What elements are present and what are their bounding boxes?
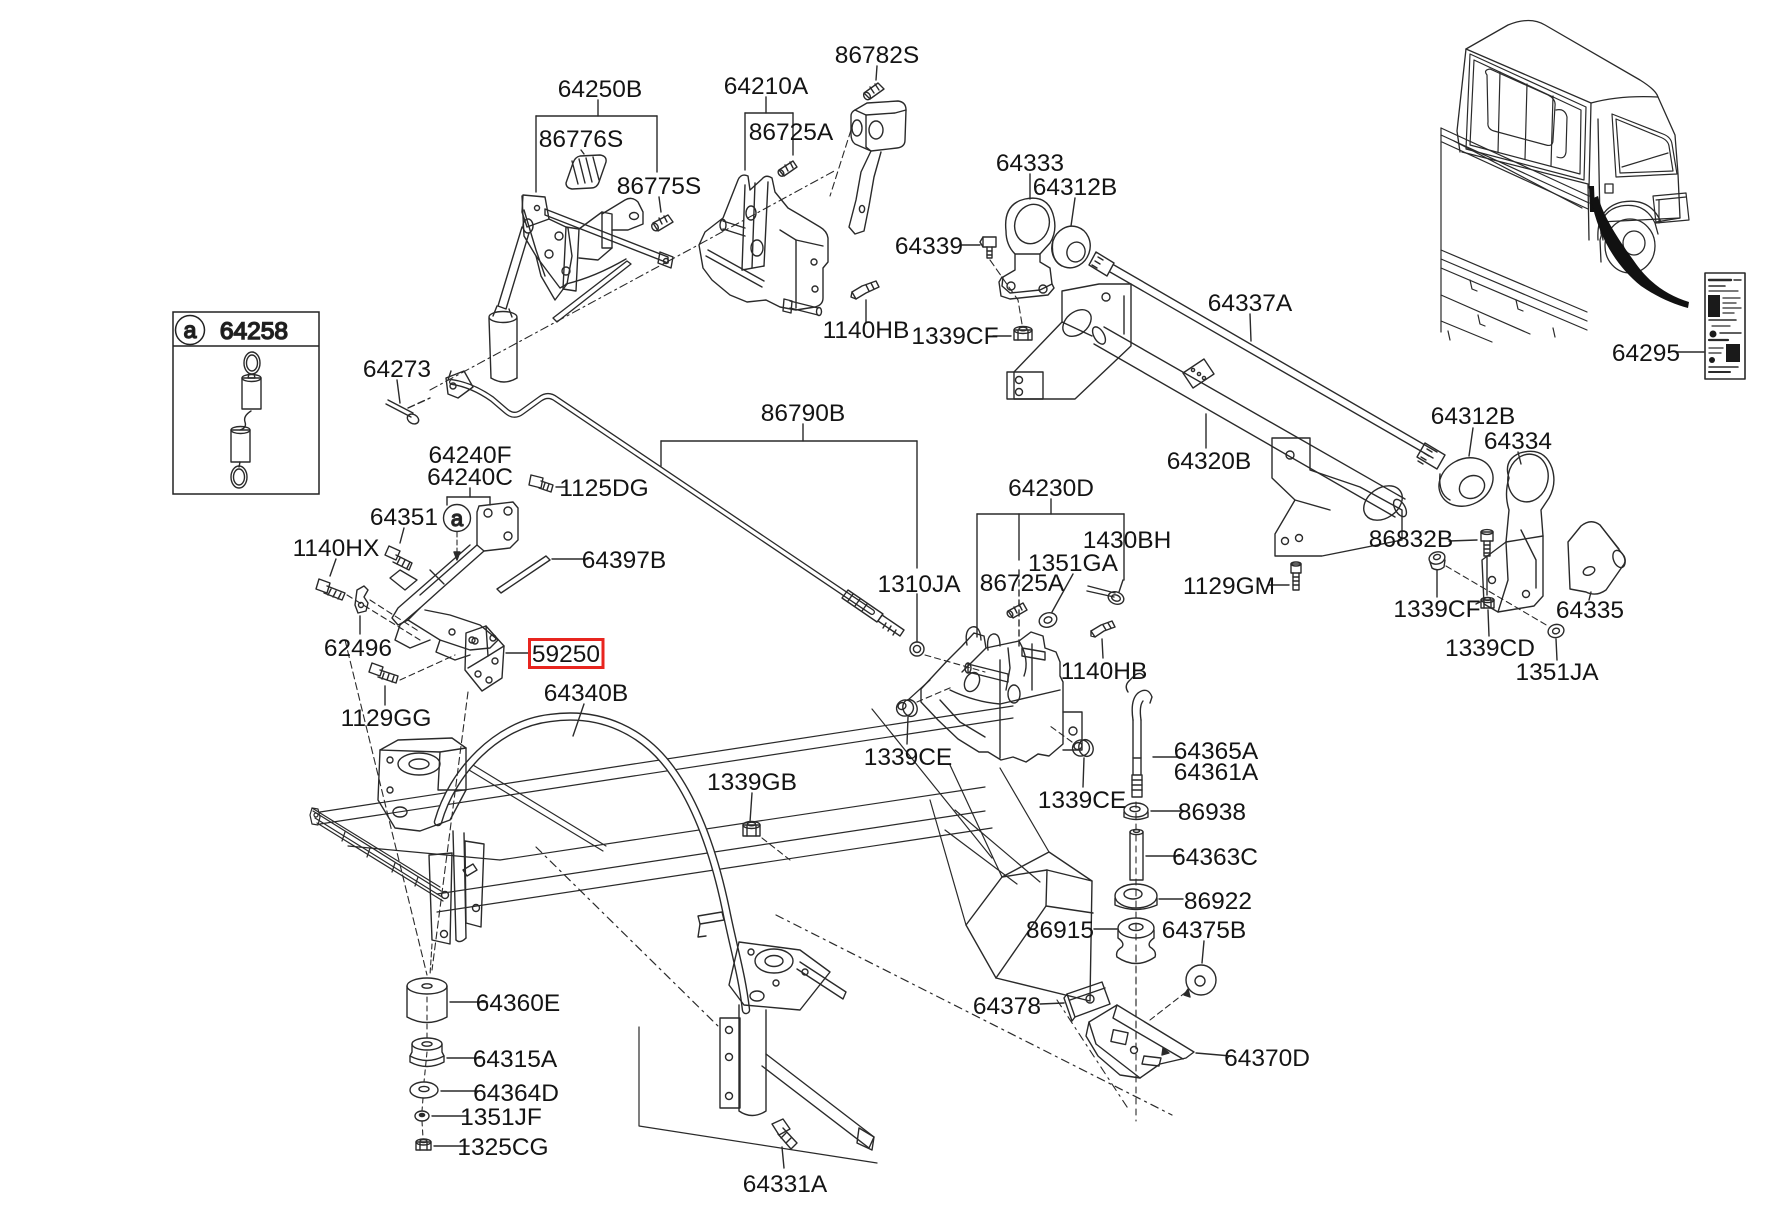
svg-text:86775S: 86775S: [617, 173, 701, 200]
svg-text:64397B: 64397B: [582, 547, 666, 574]
svg-text:1129GG: 1129GG: [341, 705, 432, 732]
svg-text:64312B: 64312B: [1431, 403, 1515, 430]
svg-text:64295: 64295: [1612, 340, 1680, 367]
svg-text:1339CF: 1339CF: [911, 323, 998, 350]
svg-text:1339CF: 1339CF: [1393, 596, 1480, 623]
svg-text:64360E: 64360E: [476, 990, 560, 1017]
svg-text:1351JA: 1351JA: [1515, 659, 1599, 686]
svg-text:64273: 64273: [363, 356, 431, 383]
svg-text:64339: 64339: [895, 233, 963, 260]
svg-text:64230D: 64230D: [1008, 475, 1094, 502]
svg-text:64210A: 64210A: [724, 73, 809, 100]
svg-text:64240C: 64240C: [427, 464, 513, 491]
svg-text:86776S: 86776S: [539, 126, 623, 153]
svg-text:59250: 59250: [532, 641, 600, 668]
svg-text:86832B: 86832B: [1369, 526, 1453, 553]
svg-text:64331A: 64331A: [743, 1171, 828, 1198]
svg-text:1129GM: 1129GM: [1183, 573, 1275, 600]
svg-text:64361A: 64361A: [1174, 759, 1259, 786]
svg-text:64334: 64334: [1484, 428, 1552, 455]
svg-text:1125DG: 1125DG: [559, 475, 648, 502]
svg-text:86790B: 86790B: [761, 400, 845, 427]
svg-text:64250B: 64250B: [558, 76, 642, 103]
svg-text:1351JF: 1351JF: [460, 1104, 542, 1131]
svg-text:1325CG: 1325CG: [457, 1134, 548, 1161]
svg-text:1339CE: 1339CE: [1038, 787, 1127, 814]
svg-text:1140HB: 1140HB: [1061, 658, 1148, 685]
svg-text:64258: 64258: [220, 318, 288, 345]
svg-text:64375B: 64375B: [1162, 917, 1246, 944]
svg-text:64320B: 64320B: [1167, 448, 1251, 475]
svg-text:64378: 64378: [973, 993, 1041, 1020]
svg-text:a: a: [184, 317, 197, 343]
svg-text:64333: 64333: [996, 150, 1064, 177]
svg-text:64312B: 64312B: [1033, 174, 1117, 201]
svg-text:86915: 86915: [1026, 917, 1094, 944]
svg-text:1140HX: 1140HX: [293, 535, 380, 562]
svg-text:1310JA: 1310JA: [877, 571, 961, 598]
svg-text:1339CD: 1339CD: [1445, 635, 1535, 662]
svg-text:86782S: 86782S: [835, 42, 919, 69]
svg-text:1339GB: 1339GB: [707, 769, 797, 796]
svg-text:64337A: 64337A: [1208, 290, 1293, 317]
svg-text:1339CE: 1339CE: [864, 744, 953, 771]
svg-text:64335: 64335: [1556, 597, 1624, 624]
svg-text:62496: 62496: [324, 635, 392, 662]
svg-text:a: a: [451, 506, 464, 531]
svg-text:86938: 86938: [1178, 799, 1246, 826]
svg-text:86922: 86922: [1184, 888, 1252, 915]
svg-text:64315A: 64315A: [473, 1046, 558, 1073]
svg-text:64351: 64351: [370, 504, 438, 531]
svg-text:1140HB: 1140HB: [823, 317, 910, 344]
svg-text:64370D: 64370D: [1224, 1045, 1310, 1072]
svg-text:64364D: 64364D: [473, 1080, 559, 1107]
svg-text:64340B: 64340B: [544, 680, 628, 707]
svg-text:86725A: 86725A: [749, 119, 834, 146]
svg-text:64363C: 64363C: [1172, 844, 1258, 871]
svg-text:86725A: 86725A: [980, 570, 1065, 597]
